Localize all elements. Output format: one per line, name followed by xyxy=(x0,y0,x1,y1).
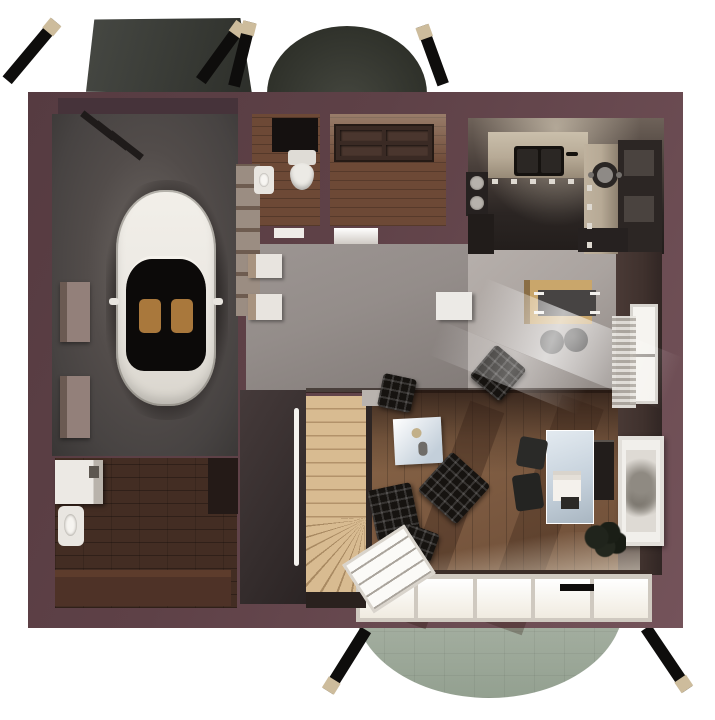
bathroom-sink xyxy=(254,166,274,194)
staircase-straight-treads xyxy=(306,396,368,520)
entrance-dome-roof xyxy=(267,26,427,94)
car-seat xyxy=(139,299,161,333)
door-threshold xyxy=(334,228,378,244)
window-vent xyxy=(560,584,594,591)
car-mirror xyxy=(109,298,119,305)
strut-tip-icon xyxy=(240,20,257,36)
garage-canopy xyxy=(86,18,252,94)
pot-on-cooktop xyxy=(592,162,618,188)
strut-tip-icon xyxy=(415,24,433,41)
vase xyxy=(418,442,428,456)
patio-strut-left xyxy=(323,627,371,694)
strut-tip-icon xyxy=(42,18,61,37)
hall-wall-box xyxy=(248,254,282,278)
garage-vent-slats xyxy=(78,122,142,162)
door-threshold xyxy=(274,228,304,238)
bathroom-mirror-panel xyxy=(272,118,318,152)
cabinet-handles xyxy=(492,179,586,184)
kitchen-cabinet xyxy=(468,214,494,254)
tufted-armchair xyxy=(377,373,417,413)
hall-wall-box xyxy=(248,294,282,320)
utility-doorway xyxy=(208,458,238,514)
kitchen-double-sink xyxy=(514,146,564,176)
desk-laptop xyxy=(561,497,579,509)
front-door xyxy=(334,124,434,162)
car-windshield xyxy=(126,256,206,371)
floor-plan-render xyxy=(0,0,715,720)
car-seat xyxy=(171,299,193,333)
utility-sink xyxy=(58,506,84,546)
potted-plant xyxy=(584,522,626,560)
desk-chair xyxy=(516,436,549,470)
strut-tip-icon xyxy=(322,676,341,694)
picture-art xyxy=(626,450,656,532)
radiator xyxy=(612,316,636,408)
stair-landing-shadow xyxy=(306,592,366,608)
car-mirror xyxy=(213,298,223,305)
kitchen-faucet xyxy=(566,152,578,156)
kitchen-sideboard xyxy=(578,228,628,252)
handrail-light-strip xyxy=(294,408,299,566)
white-car xyxy=(116,190,216,406)
desk-chair xyxy=(512,472,545,512)
hall-cabinet xyxy=(436,292,472,320)
glass-desk xyxy=(546,430,594,524)
garage-storage-niche xyxy=(60,376,90,438)
blue-side-table xyxy=(393,417,443,465)
canopy-strut-left xyxy=(3,18,61,84)
utility-bench xyxy=(55,570,231,606)
washing-machine xyxy=(55,460,103,504)
garage-storage-niche xyxy=(60,282,90,342)
patio-strut-right xyxy=(641,625,692,693)
desk-shelf xyxy=(594,440,614,500)
vase xyxy=(411,428,422,439)
strut-tip-icon xyxy=(674,675,693,694)
cabinet-handles xyxy=(587,182,592,248)
kitchen-fridge xyxy=(466,172,488,216)
